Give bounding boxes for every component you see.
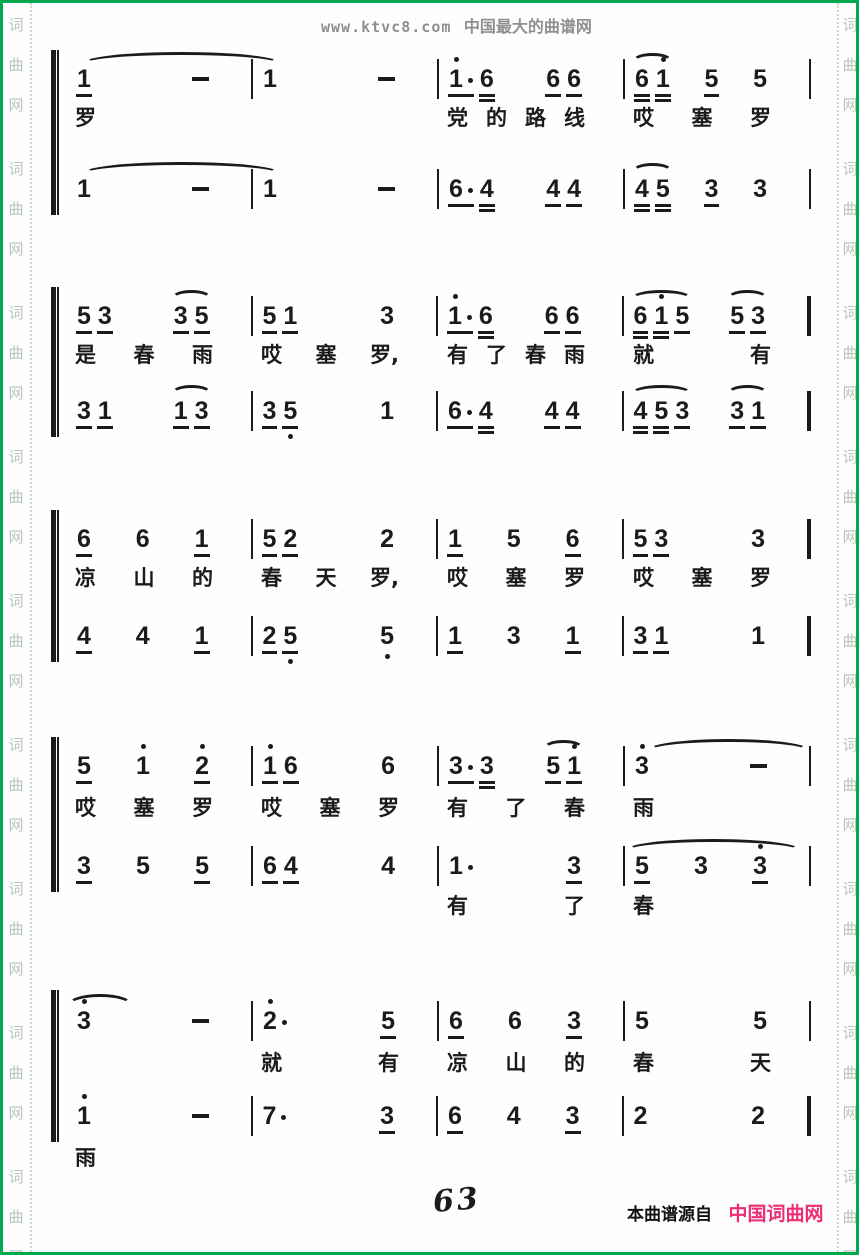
note: 5: [77, 303, 91, 329]
eighth-underline: [447, 554, 463, 557]
measure: 131: [438, 616, 624, 656]
watermark-character: 网: [5, 949, 27, 989]
lyrics-measure: 哎塞罗: [253, 793, 439, 823]
source-credit: 本曲谱源自 中国词曲网: [627, 1199, 823, 1226]
note: 1: [751, 398, 765, 424]
dash-glyph: [192, 77, 209, 81]
note: 6: [567, 66, 581, 92]
eighth-underline: [633, 426, 649, 429]
watermark-character: 网: [5, 373, 27, 413]
voice-2-notes: 35564413533: [67, 848, 811, 884]
eighth-underline: [448, 94, 474, 97]
note-group: 2: [380, 526, 394, 552]
watermark-text: 词曲网: [5, 5, 27, 125]
eighth-underline: [565, 554, 581, 557]
lyric-syllable: 有: [447, 793, 468, 823]
system-5: 32566355就有凉山的春天17364322雨: [51, 988, 813, 1183]
watermark-character: 词: [839, 293, 859, 333]
sixteenth-underline: [479, 209, 495, 212]
watermark-character: 网: [839, 1237, 859, 1252]
note-group: 6: [566, 526, 580, 552]
note-digit: 5: [195, 303, 209, 329]
note-digit: 1: [448, 303, 462, 329]
note: 5: [656, 176, 670, 202]
note-group: 1: [263, 66, 277, 92]
lyrics-measure: [253, 891, 439, 921]
voice-2-lyrics: 雨: [67, 1143, 811, 1173]
note: 6: [448, 398, 472, 424]
lyrics-measure: 就有: [625, 340, 811, 370]
eighth-underline: [76, 94, 92, 97]
eighth-underline: [545, 94, 561, 97]
lyric-syllable: 哎: [447, 563, 468, 593]
watermark-character: 词: [839, 149, 859, 189]
source-site-link[interactable]: 中国词曲网: [728, 1203, 823, 1225]
system-bracket: [51, 737, 59, 892]
note: 3: [449, 753, 473, 779]
note-group: 52: [263, 526, 298, 552]
note: 1: [449, 66, 473, 92]
note-digit: 5: [283, 398, 297, 424]
measure: 3: [67, 1001, 253, 1041]
augmentation-dot: [467, 315, 472, 320]
eighth-underline: [194, 881, 210, 884]
dash-glyph: [192, 187, 209, 191]
note-group: 6: [381, 753, 395, 779]
note-digit: 5: [195, 853, 209, 879]
note: 1: [380, 398, 394, 424]
watermark-character: 曲: [5, 333, 27, 373]
note: 1: [98, 398, 112, 424]
note-digit: 5: [77, 303, 91, 329]
note-digit: 3: [753, 853, 767, 879]
note: 6: [508, 1008, 522, 1034]
note-digit: 4: [567, 176, 581, 202]
note: 2: [283, 526, 297, 552]
note: 2: [380, 526, 394, 552]
eighth-underline: [262, 331, 278, 334]
note-group: 66: [546, 66, 581, 92]
lyric-syllable: 春: [633, 1048, 654, 1078]
note-digit: 6: [448, 1103, 462, 1129]
measure: 522: [253, 519, 439, 559]
octave-dot-low: [288, 434, 293, 439]
note-digit: 1: [77, 176, 91, 202]
watermark-character: 曲: [5, 909, 27, 949]
scanned-score-page: 词曲网词曲网词曲网词曲网词曲网词曲网词曲网词曲网词曲网 词曲网词曲网词曲网词曲网…: [0, 0, 859, 1255]
measure: 166: [253, 746, 439, 786]
watermark-character: 网: [839, 517, 859, 557]
note-group: 5: [507, 526, 521, 552]
note-digit: 6: [479, 303, 493, 329]
note-digit: 5: [753, 1008, 767, 1034]
note-digit: 4: [546, 176, 560, 202]
eighth-underline: [565, 426, 581, 429]
tie-group: 31: [730, 398, 765, 424]
watermark-text: 词曲网: [5, 1013, 27, 1133]
dash-glyph: [378, 77, 395, 81]
note: 5: [675, 303, 689, 329]
note: 4: [545, 398, 559, 424]
watermark-character: 曲: [839, 621, 859, 661]
lyrics-measure: [253, 103, 439, 133]
note: 3: [751, 526, 765, 552]
note: 5: [136, 853, 150, 879]
watermark-character: 曲: [839, 1053, 859, 1093]
note: 6: [449, 1008, 463, 1034]
lyric-syllable: 了: [486, 340, 507, 370]
lyrics-measure: 雨: [67, 1143, 253, 1173]
note-group: 53: [634, 526, 669, 552]
octave-dot-high: [758, 844, 763, 849]
watermark-character: 曲: [839, 765, 859, 805]
note-digit: 4: [545, 398, 559, 424]
source-label: 本曲谱源自: [627, 1205, 712, 1225]
tie-group: 453: [634, 398, 690, 424]
lyric-syllable: 罗: [378, 793, 399, 823]
watermark-character: 词: [5, 725, 27, 765]
octave-dot-high: [659, 294, 664, 299]
note-digit: 6: [381, 753, 395, 779]
eighth-underline: [704, 94, 720, 97]
octave-dot-high: [141, 744, 146, 749]
note-digit: 1: [77, 1103, 91, 1129]
site-url: www.ktvc8.com: [321, 18, 451, 36]
note-group: 6: [448, 1103, 462, 1129]
note-digit: 3: [98, 303, 112, 329]
watermark-character: 网: [839, 661, 859, 701]
watermark-character: 曲: [5, 1197, 27, 1237]
note: 3: [694, 853, 708, 879]
watermark-divider-right: [837, 3, 839, 1252]
watermark-character: 曲: [5, 45, 27, 85]
watermark-text: 词曲网: [5, 725, 27, 845]
note-digit: 5: [675, 303, 689, 329]
voice-1-notes: 32566355: [67, 1003, 811, 1039]
measure: 6444: [439, 169, 625, 209]
eighth-underline: [76, 331, 92, 334]
dash-glyph: [378, 187, 395, 191]
note: 3: [654, 526, 668, 552]
note-digit: 1: [751, 623, 765, 649]
note: 3: [753, 853, 767, 879]
note-digit: 1: [654, 303, 668, 329]
lyric-syllable: 有: [750, 340, 771, 370]
voice-1-lyrics: 就有凉山的春天: [67, 1048, 811, 1078]
note-digit: 5: [753, 66, 767, 92]
octave-dot-high: [82, 1094, 87, 1099]
sixteenth-underline: [653, 431, 669, 434]
measure: 61553: [624, 296, 812, 336]
note-group: 4: [77, 623, 91, 649]
watermark-character: 词: [5, 581, 27, 621]
note-digit: 6: [566, 526, 580, 552]
eighth-underline: [704, 204, 720, 207]
watermark-character: 曲: [839, 189, 859, 229]
note-group: 5: [77, 753, 91, 779]
voice-2-lyrics: 有了春: [67, 891, 811, 921]
note-digit: 5: [136, 853, 150, 879]
measure: 22: [624, 1096, 812, 1136]
eighth-underline: [283, 781, 299, 784]
note-digit: 3: [507, 623, 521, 649]
site-slogan: 中国最大的曲谱网: [464, 17, 592, 36]
sixteenth-underline: [633, 431, 649, 434]
eighth-underline: [379, 1131, 395, 1134]
lyrics-measure: [625, 1143, 811, 1173]
note: 6: [381, 753, 395, 779]
half-note-dash: [192, 176, 209, 202]
measure: 25: [253, 1001, 439, 1041]
note-group: 3: [507, 623, 521, 649]
note: 3: [635, 753, 649, 779]
sixteenth-underline: [655, 209, 671, 212]
eighth-underline: [479, 781, 495, 784]
measure: 255: [253, 616, 439, 656]
measure: 1: [253, 59, 439, 99]
note-group: 5: [753, 66, 767, 92]
note-group: 6: [449, 1008, 463, 1034]
system-1: 1116666155罗党的路线哎塞罗1164444533: [51, 48, 813, 218]
note-digit: 5: [546, 753, 560, 779]
note: 3: [380, 1103, 394, 1129]
lyric-syllable: 塞: [320, 793, 341, 823]
note: 5: [283, 398, 297, 424]
measure: 1: [67, 1096, 253, 1136]
note-digit: 3: [380, 1103, 394, 1129]
note-group: [750, 753, 767, 779]
octave-dot-high: [82, 999, 87, 1004]
note-group: 3: [77, 1008, 91, 1034]
note-digit: 6: [635, 66, 649, 92]
lyric-syllable: 塞: [692, 103, 713, 133]
note-digit: 4: [566, 398, 580, 424]
eighth-underline: [447, 651, 463, 654]
lyric-syllable: 春: [525, 340, 546, 370]
note: 1: [448, 526, 462, 552]
lyric-syllable: 塞: [134, 793, 155, 823]
note-group: 51: [263, 303, 298, 329]
watermark-character: 词: [839, 1013, 859, 1053]
eighth-underline: [633, 651, 649, 654]
octave-dot-high: [200, 744, 205, 749]
note-digit: 1: [566, 623, 580, 649]
measure: 1666: [439, 59, 625, 99]
eighth-underline: [565, 331, 581, 334]
measure: 1666: [438, 296, 624, 336]
eighth-underline: [565, 1131, 581, 1134]
measure: 1: [67, 59, 253, 99]
note: 3: [751, 303, 765, 329]
note: 1: [448, 303, 472, 329]
note-digit: 7: [263, 1103, 277, 1129]
eighth-underline: [479, 204, 495, 207]
note-group: 3: [380, 303, 394, 329]
note-group: [192, 66, 209, 92]
watermark-text: 词曲网: [5, 869, 27, 989]
eighth-underline: [478, 331, 494, 334]
note-group: 7: [263, 1103, 287, 1129]
note: 3: [480, 753, 494, 779]
note-group: 33: [449, 753, 494, 779]
watermark-character: 曲: [5, 1053, 27, 1093]
lyric-syllable: 凉: [75, 563, 96, 593]
watermark-text: 词曲网: [839, 869, 859, 989]
lyrics-measure: 党的路线: [439, 103, 625, 133]
measure: 55: [625, 1001, 811, 1041]
note-digit: 6: [77, 526, 91, 552]
watermark-character: 曲: [839, 45, 859, 85]
lyrics-measure: 哎塞罗,: [253, 340, 439, 370]
measure: 644: [253, 846, 439, 886]
note-group: 16: [263, 753, 298, 779]
half-note-dash: [378, 176, 395, 202]
lyric-syllable: 了: [564, 891, 585, 921]
eighth-underline: [262, 426, 278, 429]
watermark-character: 词: [839, 581, 859, 621]
note-group: 5: [195, 853, 209, 879]
note-digit: 1: [195, 526, 209, 552]
lyrics-measure: 哎塞罗: [439, 563, 625, 593]
lyric-syllable: 罗: [750, 563, 771, 593]
measure: 4533: [625, 169, 811, 209]
note: 5: [507, 526, 521, 552]
note-digit: 6: [634, 303, 648, 329]
lyric-syllable: 塞: [316, 340, 337, 370]
measure: 661: [67, 519, 253, 559]
note: 5: [635, 853, 649, 879]
note: 1: [751, 623, 765, 649]
note: 4: [635, 176, 649, 202]
note: 1: [77, 1103, 91, 1129]
watermark-character: 词: [5, 149, 27, 189]
note-digit: 3: [730, 398, 744, 424]
half-note-dash: [192, 1103, 209, 1129]
note-group: 1: [751, 623, 765, 649]
note-digit: 6: [449, 1008, 463, 1034]
eighth-underline: [565, 651, 581, 654]
eighth-underline: [194, 554, 210, 557]
note: 3: [263, 398, 277, 424]
voice-1-notes: 51216633513: [67, 748, 811, 784]
watermark-text: 词曲网: [839, 1013, 859, 1133]
note-digit: 1: [174, 398, 188, 424]
lyrics-measure: 哎塞罗: [67, 793, 253, 823]
note-digit: 4: [284, 853, 298, 879]
note-digit: 5: [634, 526, 648, 552]
eighth-underline: [97, 426, 113, 429]
note-digit: 1: [654, 623, 668, 649]
lyric-syllable: 罗,: [370, 563, 399, 593]
lyric-syllable: 党: [447, 103, 468, 133]
note-group: 3: [77, 853, 91, 879]
lyric-syllable: 罗: [192, 793, 213, 823]
note: 5: [705, 66, 719, 92]
lyric-syllable: 罗: [750, 103, 771, 133]
note-digit: 2: [380, 526, 394, 552]
lyric-syllable: 线: [564, 103, 585, 133]
note: 4: [634, 398, 648, 424]
note: 3: [77, 398, 91, 424]
note: 4: [546, 176, 560, 202]
lyric-syllable: 罗,: [370, 340, 399, 370]
note: 5: [730, 303, 744, 329]
note-group: 5: [635, 1008, 649, 1034]
voice-2-notes: 3113351644445331: [67, 393, 811, 429]
watermark-character: 网: [839, 805, 859, 845]
eighth-underline: [674, 331, 690, 334]
lyrics-measure: 春: [625, 891, 811, 921]
note: 4: [507, 1103, 521, 1129]
note-group: 4: [136, 623, 150, 649]
note-digit: 1: [263, 753, 277, 779]
note-digit: 5: [635, 853, 649, 879]
watermark-character: 词: [5, 1013, 27, 1053]
note: 4: [381, 853, 395, 879]
watermark-character: 曲: [5, 621, 27, 661]
watermark-character: 网: [5, 85, 27, 125]
lyric-syllable: 有: [378, 1048, 399, 1078]
eighth-underline: [283, 881, 299, 884]
eighth-underline: [729, 331, 745, 334]
note-digit: 1: [195, 623, 209, 649]
eighth-underline: [545, 204, 561, 207]
augmentation-dot: [468, 765, 473, 770]
note-digit: 5: [77, 753, 91, 779]
octave-dot-high: [453, 294, 458, 299]
note: 6: [635, 66, 649, 92]
eighth-underline: [479, 94, 495, 97]
sixteenth-underline: [633, 336, 649, 339]
eighth-underline: [634, 881, 650, 884]
watermark-character: 词: [839, 725, 859, 765]
note-digit: 5: [263, 303, 277, 329]
eighth-underline: [634, 204, 650, 207]
watermark-character: 词: [5, 5, 27, 45]
eighth-underline: [729, 426, 745, 429]
note-group: 31: [634, 623, 669, 649]
note-digit: 2: [634, 1103, 648, 1129]
measure: 1: [67, 169, 253, 209]
voice-1-lyrics: 是春雨哎塞罗,有了春雨就有: [67, 340, 811, 370]
note-digit: 3: [654, 526, 668, 552]
eighth-underline: [653, 554, 669, 557]
measure: 1: [253, 169, 439, 209]
eighth-underline: [282, 554, 298, 557]
note: 6: [634, 303, 648, 329]
measure: 45331: [624, 391, 812, 431]
note: 6: [566, 303, 580, 329]
augmentation-dot: [468, 865, 473, 870]
watermark-character: 曲: [5, 477, 27, 517]
note: 7: [263, 1103, 287, 1129]
note-group: 3: [635, 753, 649, 779]
measure: 5335: [67, 296, 253, 336]
eighth-underline: [76, 781, 92, 784]
note-group: 1: [263, 176, 277, 202]
watermark-character: 词: [5, 1157, 27, 1197]
watermark-text: 词曲网: [839, 1157, 859, 1252]
eighth-underline: [194, 426, 210, 429]
lyrics-measure: [67, 891, 253, 921]
note: 1: [656, 66, 670, 92]
note: 3: [705, 176, 719, 202]
note: 5: [753, 66, 767, 92]
tie-group: 53: [730, 303, 765, 329]
measure: 6155: [625, 59, 811, 99]
eighth-underline: [262, 651, 278, 654]
eighth-underline: [262, 554, 278, 557]
